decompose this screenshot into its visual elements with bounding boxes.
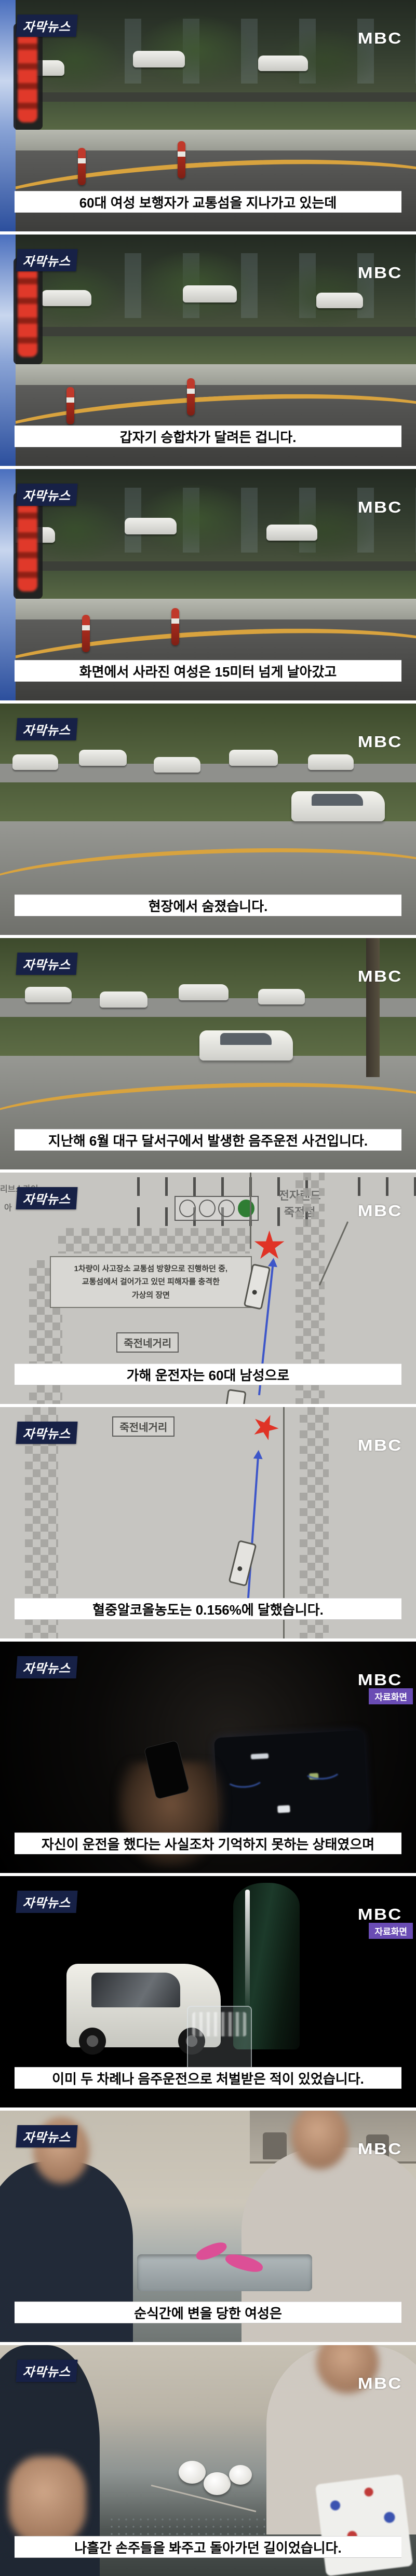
- grass-island: [0, 102, 416, 130]
- dashboard-screen: [214, 1730, 369, 1840]
- mbc-logo: MBC: [358, 2374, 402, 2393]
- signal-lamp: [199, 1200, 216, 1217]
- mbc-logo: MBC: [358, 1671, 402, 1689]
- caption-bar: 갑자기 승합차가 달려든 겁니다.: [15, 425, 401, 447]
- program-badge: 자막뉴스: [16, 484, 77, 506]
- program-badge: 자막뉴스: [16, 953, 77, 975]
- white-sedan: [199, 1030, 293, 1060]
- source-badge: 자료화면: [369, 1688, 413, 1704]
- sidewalk: [0, 130, 416, 150]
- video-frame-7: 죽전네거리 자막뉴스 MBC 혈중알코올농도는 0.156%에 달했습니다.: [0, 1407, 416, 1638]
- tree-trunk: [366, 938, 380, 1077]
- parked-car: [25, 987, 72, 1002]
- video-frame-10: 자막뉴스 MBC 순식간에 변을 당한 여성은: [0, 2111, 416, 2342]
- stainless-sink: [137, 2254, 312, 2291]
- caption-bar: 화면에서 사라진 여성은 15미터 넘게 날아갔고: [15, 660, 401, 682]
- red-traffic-light: [18, 30, 37, 122]
- caption-bar: 가해 운전자는 60대 남성으로: [15, 1363, 401, 1385]
- program-badge: 자막뉴스: [16, 2360, 77, 2382]
- parked-car: [133, 51, 185, 67]
- grass-island: [0, 336, 416, 364]
- video-frame-9: 자막뉴스 MBC 자료화면 이미 두 차례나 음주운전으로 처벌받은 적이 있었…: [0, 1876, 416, 2107]
- mbc-logo: MBC: [358, 264, 402, 282]
- mbc-logo: MBC: [358, 967, 402, 986]
- caption-bar: 현장에서 숨졌습니다.: [15, 894, 401, 916]
- blurred-arm: [8, 2456, 86, 2544]
- soju-glass: [187, 2006, 251, 2075]
- signal-lamp: [218, 1200, 235, 1217]
- vent-arc: [224, 1766, 265, 1789]
- junction-label: 죽전네거리: [112, 1416, 175, 1437]
- toy-car-wheel: [79, 2028, 106, 2055]
- program-badge: 자막뉴스: [16, 718, 77, 740]
- parked-car: [125, 518, 177, 534]
- caption-bar: 혈중알코올농도는 0.156%에 달했습니다.: [15, 1598, 401, 1620]
- marshmallow: [229, 2465, 252, 2485]
- caption-bar: 나흘간 손주들을 봐주고 돌아가던 길이었습니다.: [15, 2536, 401, 2558]
- caption-bar: 이미 두 차례나 음주운전으로 처벌받은 적이 있었습니다.: [15, 2067, 401, 2089]
- caption-bar: 60대 여성 보행자가 교통섬을 지나가고 있는데: [15, 191, 401, 213]
- program-badge: 자막뉴스: [16, 15, 77, 37]
- red-bollard: [187, 378, 195, 416]
- video-frame-6: 전자랜드 죽전점 리브스카이 아 1차량이 사고장소 교통섬 방향으로 진행하던…: [0, 1173, 416, 1404]
- sketch-note: 1차량이 사고장소 교통섬 방향으로 진행하던 중, 교통섬에서 걸어가고 있던…: [50, 1256, 251, 1308]
- mbc-logo: MBC: [358, 1905, 402, 1924]
- crosswalk-checker: [58, 1228, 249, 1253]
- program-badge: 자막뉴스: [16, 1422, 77, 1444]
- caption-news-compilation: 자막뉴스 MBC 60대 여성 보행자가 교통섬을 지나가고 있는데 자막뉴스 …: [0, 0, 416, 2576]
- video-frame-2: 자막뉴스 MBC 갑자기 승합차가 달려든 겁니다.: [0, 235, 416, 466]
- green-signal-lamp: [238, 1200, 254, 1217]
- parked-car: [308, 754, 354, 770]
- traffic-signal-diagram: [175, 1196, 259, 1221]
- parked-car: [183, 285, 237, 302]
- collision-mark: [248, 1410, 282, 1444]
- mbc-logo: MBC: [358, 29, 402, 48]
- grass-island: [0, 571, 416, 599]
- red-bollard: [82, 615, 90, 652]
- parked-car: [258, 989, 305, 1004]
- mbc-logo: MBC: [358, 1202, 402, 1220]
- blender: [263, 2132, 287, 2159]
- mbc-logo: MBC: [358, 1436, 402, 1455]
- white-sedan: [291, 791, 385, 821]
- signal-lamp: [179, 1200, 196, 1217]
- red-bollard: [178, 141, 185, 178]
- marshmallow: [204, 2472, 231, 2495]
- vehicle-sketch: [222, 1389, 246, 1404]
- video-frame-4: 자막뉴스 MBC 현장에서 숨졌습니다.: [0, 704, 416, 935]
- parked-car: [79, 750, 127, 766]
- vent-arc: [302, 1758, 342, 1781]
- parked-car: [12, 754, 58, 770]
- video-frame-3: 자막뉴스 MBC 화면에서 사라진 여성은 15미터 넘게 날아갔고: [0, 469, 416, 700]
- vehicle-path-arrow: [246, 1454, 259, 1620]
- mbc-logo: MBC: [358, 498, 402, 517]
- parked-car: [179, 984, 229, 1000]
- video-frame-11: 자막뉴스 MBC 나흘간 손주들을 봐주고 돌아가던 길이었습니다.: [0, 2345, 416, 2576]
- mbc-logo: MBC: [358, 2140, 402, 2158]
- vehicle-sketch: [228, 1540, 257, 1587]
- source-badge: 자료화면: [369, 1923, 413, 1939]
- caption-bar: 자신이 운전을 했다는 사실조차 기억하지 못하는 상태였으며: [15, 1833, 401, 1854]
- red-bollard: [78, 148, 86, 185]
- parked-car: [154, 757, 200, 773]
- program-badge: 자막뉴스: [16, 1891, 77, 1913]
- skewer: [151, 2485, 257, 2512]
- red-traffic-light: [18, 265, 37, 357]
- sidewalk: [0, 364, 416, 385]
- caption-bar: 순식간에 변을 당한 여성은: [15, 2302, 401, 2323]
- red-bollard: [171, 608, 179, 645]
- sidewalk: [0, 599, 416, 619]
- video-frame-5: 자막뉴스 MBC 지난해 6월 대구 달서구에서 발생한 음주운전 사건입니다.: [0, 938, 416, 1169]
- program-badge: 자막뉴스: [16, 249, 77, 271]
- mbc-logo: MBC: [358, 733, 402, 751]
- partial-label: 아: [4, 1201, 12, 1213]
- lane-line: [250, 1173, 251, 1249]
- program-badge: 자막뉴스: [16, 1656, 77, 1678]
- marshmallow: [179, 2461, 206, 2484]
- video-frame-8: 자막뉴스 MBC 자료화면 자신이 운전을 했다는 사실조차 기억하지 못하는 …: [0, 1642, 416, 1873]
- parked-car: [42, 290, 91, 306]
- parked-car: [266, 525, 317, 541]
- parked-car: [316, 293, 363, 308]
- red-bollard: [66, 387, 74, 424]
- parked-car: [229, 750, 278, 766]
- red-traffic-light: [18, 499, 37, 591]
- program-badge: 자막뉴스: [16, 2125, 77, 2147]
- junction-label: 죽전네거리: [116, 1332, 179, 1353]
- parked-car: [258, 56, 308, 71]
- screen-glow: [277, 1806, 290, 1813]
- marshmallow-bag: [315, 2474, 413, 2576]
- program-badge: 자막뉴스: [16, 1187, 77, 1209]
- caption-bar: 지난해 6월 대구 달서구에서 발생한 음주운전 사건입니다.: [15, 1129, 401, 1151]
- parking-dashes: [358, 1177, 416, 1196]
- video-frame-1: 자막뉴스 MBC 60대 여성 보행자가 교통섬을 지나가고 있는데: [0, 0, 416, 231]
- screen-glow: [251, 1754, 269, 1760]
- parked-car: [100, 991, 147, 1008]
